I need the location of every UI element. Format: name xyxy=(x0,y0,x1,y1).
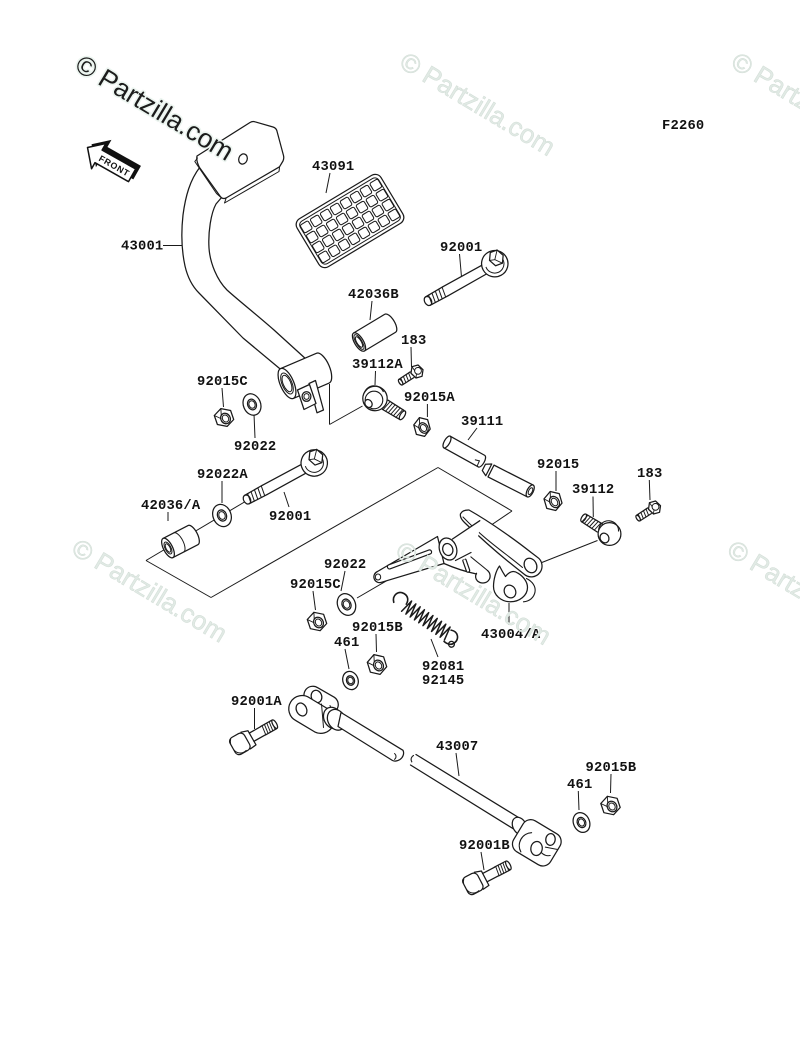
svg-text:183: 183 xyxy=(637,467,662,482)
svg-text:92015B: 92015B xyxy=(586,761,637,776)
svg-text:461: 461 xyxy=(334,636,359,651)
svg-text:92022A: 92022A xyxy=(197,468,248,483)
svg-text:92022: 92022 xyxy=(324,558,366,573)
svg-text:92145: 92145 xyxy=(422,674,464,689)
svg-text:92022: 92022 xyxy=(234,440,276,455)
svg-text:92015C: 92015C xyxy=(290,578,341,593)
svg-text:92015C: 92015C xyxy=(197,375,248,390)
svg-text:92001A: 92001A xyxy=(231,695,282,710)
svg-text:39112A: 39112A xyxy=(352,358,403,373)
svg-text:42036B: 42036B xyxy=(348,288,399,303)
svg-text:461: 461 xyxy=(567,778,592,793)
svg-text:92015B: 92015B xyxy=(352,621,403,636)
svg-text:92001: 92001 xyxy=(269,510,311,525)
svg-text:42036/A: 42036/A xyxy=(141,498,201,514)
svg-text:92001B: 92001B xyxy=(459,839,510,854)
svg-text:F2260: F2260 xyxy=(662,119,704,134)
svg-text:183: 183 xyxy=(401,334,426,349)
svg-text:92015A: 92015A xyxy=(404,391,455,406)
svg-text:39112: 39112 xyxy=(572,483,614,498)
svg-text:43001: 43001 xyxy=(121,240,163,255)
svg-text:43007: 43007 xyxy=(436,740,478,755)
svg-text:92015: 92015 xyxy=(537,458,579,473)
svg-text:43091: 43091 xyxy=(312,160,354,175)
svg-text:92001: 92001 xyxy=(440,241,482,256)
svg-text:39111: 39111 xyxy=(461,415,503,430)
svg-text:92081: 92081 xyxy=(422,660,464,675)
